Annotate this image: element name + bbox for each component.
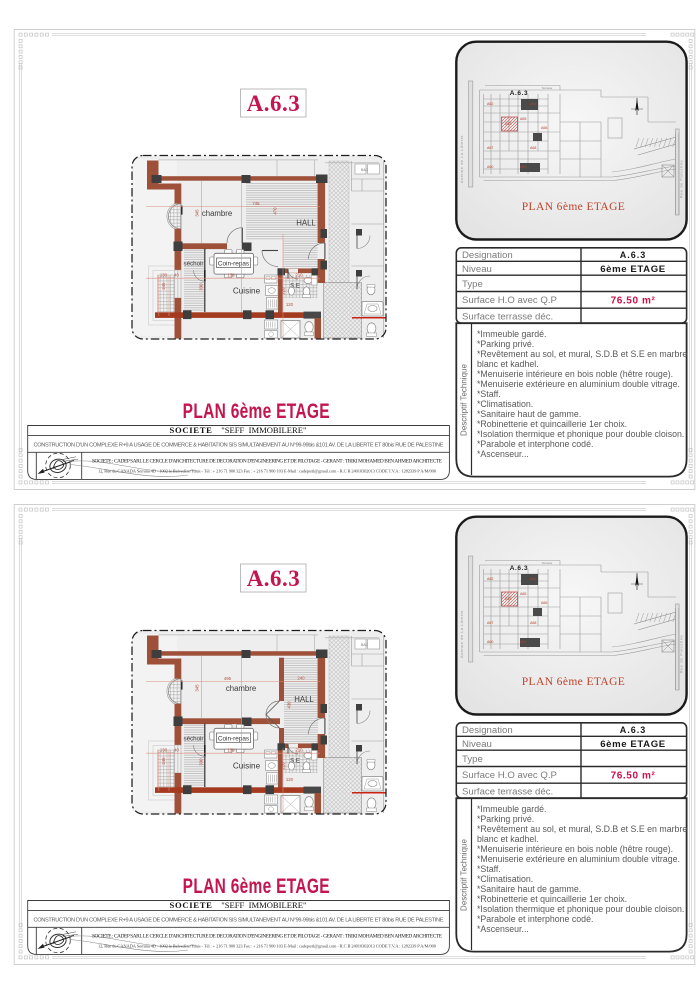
svg-text:*Revêtement au sol, et mural,: *Revêtement au sol, et mural, S.D.B et S… — [477, 824, 687, 834]
svg-text:470: 470 — [273, 207, 278, 215]
svg-text:120: 120 — [286, 777, 294, 782]
svg-text:SOCIETE : CADEP SARL LE CERC: SOCIETE : CADEP SARL LE CERCLE D'ARCHITE… — [92, 458, 442, 464]
svg-text:*Immeuble gardé.: *Immeuble gardé. — [477, 804, 546, 814]
svg-text:*Sanitaire haut de gamme.: *Sanitaire haut de gamme. — [477, 884, 581, 894]
svg-text:*Parking privé.: *Parking privé. — [477, 814, 534, 824]
svg-text:Cuisine: Cuisine — [233, 762, 261, 771]
svg-text:Type: Type — [462, 754, 483, 765]
svg-text:345: 345 — [195, 684, 200, 692]
svg-text:*Menuiserie intérieure en bois: *Menuiserie intérieure en bois noble (hê… — [477, 369, 673, 379]
svg-text:SOCIETE : CADEP SARL LE CERC: SOCIETE : CADEP SARL LE CERCLE D'ARCHITE… — [92, 933, 442, 939]
svg-text:A69: A69 — [520, 640, 526, 644]
svg-text:Rue de Palestine: Rue de Palestine — [679, 634, 684, 673]
svg-text:*Parabole et interphone codé.: *Parabole et interphone codé. — [477, 914, 593, 924]
svg-text:Niveau: Niveau — [462, 264, 492, 275]
svg-text:A65: A65 — [520, 592, 526, 596]
svg-text:40: 40 — [174, 748, 179, 753]
svg-text:A.6.3: A.6.3 — [510, 565, 529, 572]
svg-text:Avenue de La Liberte: Avenue de La Liberte — [459, 610, 464, 658]
svg-text:*Robinetterie et quincaillerie: *Robinetterie et quincaillerie 1er choix… — [477, 419, 627, 429]
svg-text:A66: A66 — [541, 126, 547, 130]
svg-text:PLAN 6ème ETAGE: PLAN 6ème ETAGE — [522, 201, 625, 213]
svg-text:*Immeuble gardé.: *Immeuble gardé. — [477, 329, 546, 339]
svg-text:*Staff.: *Staff. — [477, 389, 501, 399]
svg-text:*Climatisation.: *Climatisation. — [477, 874, 533, 884]
svg-text:SOCIETE "SEFF IMMOBILERE": SOCIETE "SEFF IMMOBILERE" — [169, 425, 306, 435]
svg-text:S.E: S.E — [290, 758, 300, 764]
svg-text:210: 210 — [295, 747, 303, 752]
svg-text:PLAN 6ème ETAGE: PLAN 6ème ETAGE — [183, 399, 330, 423]
svg-text:745: 745 — [252, 201, 260, 206]
svg-text:*Revêtement au sol, et mural,: *Revêtement au sol, et mural, S.D.B et S… — [477, 349, 687, 359]
svg-text:*Staff.: *Staff. — [477, 864, 501, 874]
svg-text:*Menuiserie extérieure en alum: *Menuiserie extérieure en aluminium doub… — [477, 379, 680, 389]
svg-text:A69: A69 — [520, 165, 526, 169]
svg-text:Coin-repas: Coin-repas — [218, 261, 249, 268]
svg-text:A60: A60 — [487, 165, 493, 169]
svg-text:*Menuiserie intérieure en bois: *Menuiserie intérieure en bois noble (hê… — [477, 844, 673, 854]
svg-text:séchoir: séchoir — [184, 261, 204, 268]
svg-text:*Menuiserie extérieure en alum: *Menuiserie extérieure en aluminium doub… — [477, 854, 680, 864]
svg-text:Rue de Palestine: Rue de Palestine — [679, 159, 684, 198]
svg-text:Terrasse: Terrasse — [542, 561, 553, 565]
svg-text:séchoir: séchoir — [184, 736, 204, 743]
svg-text:SOCIETE "SEFF IMMOBILERE": SOCIETE "SEFF IMMOBILERE" — [169, 900, 306, 910]
svg-text:*Ascenseur...: *Ascenseur... — [477, 449, 529, 459]
svg-text:345: 345 — [195, 209, 200, 217]
svg-text:Designation: Designation — [462, 250, 513, 261]
svg-text:A.6.3: A.6.3 — [620, 250, 647, 260]
svg-text:Surface H.O avec Q.P: Surface H.O avec Q.P — [462, 770, 557, 781]
svg-text:210: 210 — [295, 272, 303, 277]
svg-text:A.6.3: A.6.3 — [510, 90, 529, 97]
svg-text:chambre: chambre — [226, 684, 256, 693]
svg-text:*Robinetterie et quincaillerie: *Robinetterie et quincaillerie 1er choix… — [477, 894, 627, 904]
svg-text:A68: A68 — [530, 621, 536, 625]
svg-text:330: 330 — [198, 758, 203, 766]
svg-text:A68: A68 — [530, 146, 536, 150]
svg-text:Niveau: Niveau — [462, 739, 492, 750]
svg-text:Surface terrasse déc.: Surface terrasse déc. — [462, 312, 553, 323]
svg-text:blanc et kadhel.: blanc et kadhel. — [477, 834, 539, 844]
svg-text:A62: A62 — [487, 577, 493, 581]
svg-text:495: 495 — [224, 676, 232, 681]
svg-text:6ème ETAGE: 6ème ETAGE — [600, 739, 666, 750]
svg-text:A64: A64 — [530, 102, 536, 106]
svg-text:*Parking privé.: *Parking privé. — [477, 339, 534, 349]
svg-text:*Isolation thermique et phoniq: *Isolation thermique et phonique pour do… — [477, 904, 684, 914]
svg-text:HALL: HALL — [294, 695, 314, 704]
svg-text:245: 245 — [161, 757, 166, 765]
svg-text:HALL: HALL — [296, 219, 316, 228]
svg-text:76.50 m²: 76.50 m² — [611, 771, 656, 782]
svg-text:120: 120 — [286, 302, 294, 307]
svg-text:130: 130 — [160, 273, 168, 278]
svg-text:Descriptif Technique: Descriptif Technique — [460, 364, 469, 436]
svg-text:A67: A67 — [487, 146, 493, 150]
svg-text:*Climatisation.: *Climatisation. — [477, 399, 533, 409]
svg-text:A.6.3: A.6.3 — [247, 91, 301, 116]
svg-text:*Isolation thermique et phoniq: *Isolation thermique et phonique pour do… — [477, 429, 684, 439]
svg-text:A65: A65 — [520, 117, 526, 121]
svg-text:PLAN 6ème ETAGE: PLAN 6ème ETAGE — [183, 874, 330, 898]
svg-text:Terrasse: Terrasse — [542, 86, 553, 90]
svg-text:Descriptif Technique: Descriptif Technique — [460, 839, 469, 911]
svg-text:PLAN 6ème ETAGE: PLAN 6ème ETAGE — [522, 676, 625, 688]
svg-text:BAC: BAC — [361, 643, 369, 647]
svg-text:A60: A60 — [487, 640, 493, 644]
svg-text:CONSTRUCTION D'UN COMPLEXE R+9: CONSTRUCTION D'UN COMPLEXE R+9 A USAGE D… — [34, 918, 444, 924]
svg-text:240: 240 — [297, 675, 305, 680]
svg-text:*Parabole et interphone codé.: *Parabole et interphone codé. — [477, 439, 593, 449]
svg-text:*Sanitaire haut de gamme.: *Sanitaire haut de gamme. — [477, 409, 581, 419]
svg-text:139: 139 — [227, 747, 235, 752]
svg-text:S.E: S.E — [290, 283, 300, 289]
svg-text:CONSTRUCTION D'UN COMPLEXE R+9: CONSTRUCTION D'UN COMPLEXE R+9 A USAGE D… — [34, 443, 444, 449]
svg-text:A63: A63 — [505, 122, 511, 126]
svg-text:Coin-repas: Coin-repas — [218, 736, 249, 743]
svg-text:Surface H.O avec Q.P: Surface H.O avec Q.P — [462, 295, 557, 306]
svg-text:A62: A62 — [487, 102, 493, 106]
svg-text:76.50 m²: 76.50 m² — [611, 296, 656, 307]
svg-text:A64: A64 — [530, 577, 536, 581]
svg-text:220: 220 — [281, 287, 286, 295]
svg-text:A67: A67 — [487, 621, 493, 625]
svg-text:430: 430 — [287, 701, 292, 709]
svg-text:6ème ETAGE: 6ème ETAGE — [600, 264, 666, 275]
svg-text:330: 330 — [198, 283, 203, 291]
svg-text:A63: A63 — [505, 597, 511, 601]
svg-text:Designation: Designation — [462, 725, 513, 736]
svg-text:Type: Type — [462, 279, 483, 290]
svg-text:Surface terrasse déc.: Surface terrasse déc. — [462, 787, 553, 798]
svg-text:245: 245 — [161, 282, 166, 290]
svg-text:chambre: chambre — [202, 209, 232, 218]
svg-text:130: 130 — [160, 748, 168, 753]
svg-text:A.6.3: A.6.3 — [620, 725, 647, 735]
svg-text:blanc et kadhel.: blanc et kadhel. — [477, 359, 539, 369]
svg-text:BAC: BAC — [361, 168, 369, 172]
svg-text:220: 220 — [281, 762, 286, 770]
svg-text:*Ascenseur...: *Ascenseur... — [477, 924, 529, 934]
svg-text:Avenue de La Liberte: Avenue de La Liberte — [459, 135, 464, 183]
svg-text:Cuisine: Cuisine — [233, 287, 261, 296]
svg-text:A.6.3: A.6.3 — [247, 566, 301, 591]
svg-text:139: 139 — [227, 272, 235, 277]
svg-text:40: 40 — [174, 273, 179, 278]
svg-text:A66: A66 — [541, 601, 547, 605]
